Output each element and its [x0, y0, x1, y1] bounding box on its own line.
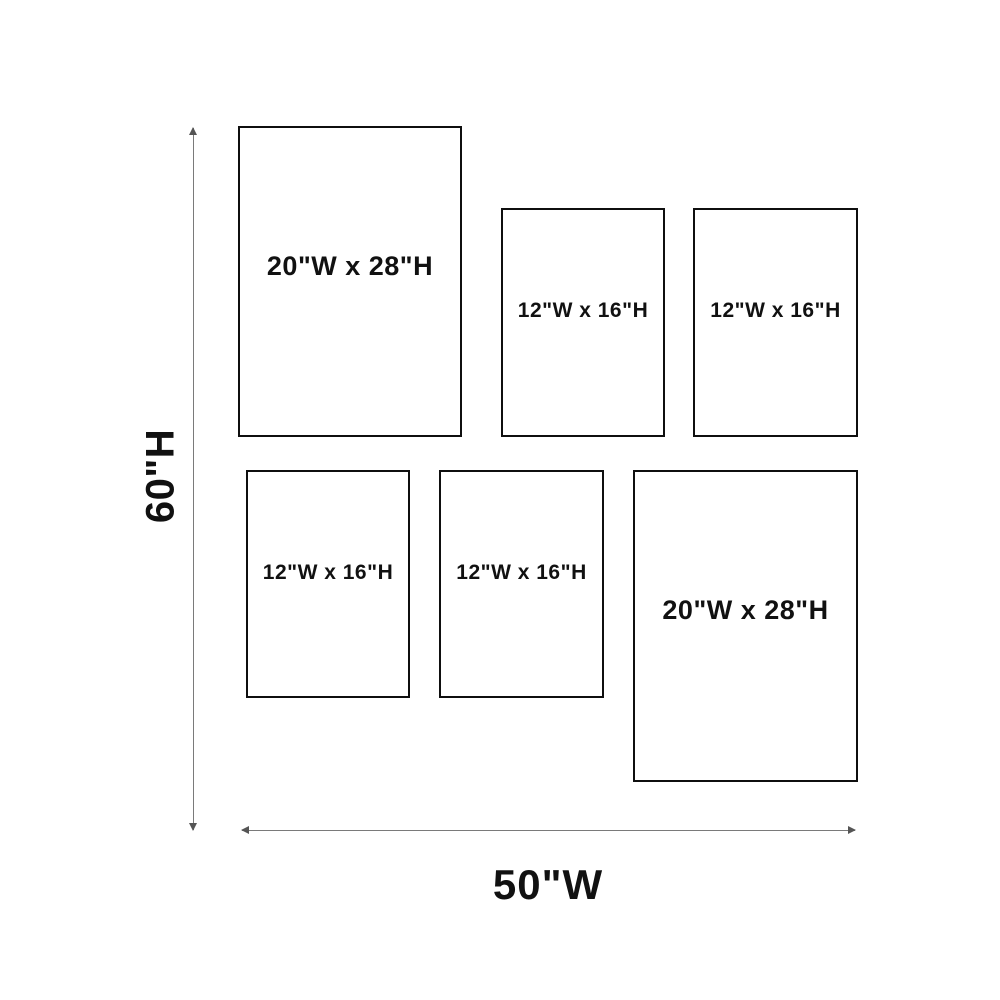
frame-12x16-top-middle: 12"W x 16"H: [501, 208, 665, 437]
frame-12x16-top-right: 12"W x 16"H: [693, 208, 858, 437]
height-dimension-label: 60"H: [139, 429, 184, 523]
width-dimension-label: 50"W: [493, 861, 603, 909]
width-dimension-line: [242, 830, 855, 831]
frame-size-label: 20"W x 28"H: [662, 595, 828, 626]
frame-size-label: 12"W x 16"H: [518, 299, 648, 323]
height-dimension-line: [193, 128, 194, 830]
arrow-right-icon: [848, 826, 856, 834]
frame-size-label: 12"W x 16"H: [710, 299, 840, 323]
frame-20x28-bottom-right: 20"W x 28"H: [633, 470, 858, 782]
frame-size-label: 12"W x 16"H: [456, 561, 586, 585]
frame-12x16-bottom-middle: 12"W x 16"H: [439, 470, 604, 698]
frame-size-label: 20"W x 28"H: [267, 251, 433, 282]
frame-20x28-top-left: 20"W x 28"H: [238, 126, 462, 437]
arrow-left-icon: [241, 826, 249, 834]
arrow-down-icon: [189, 823, 197, 831]
gallery-wall-diagram: 60"H 50"W 20"W x 28"H 12"W x 16"H 12"W x…: [0, 0, 1000, 1000]
frame-12x16-bottom-left: 12"W x 16"H: [246, 470, 410, 698]
arrow-up-icon: [189, 127, 197, 135]
frame-size-label: 12"W x 16"H: [263, 561, 393, 585]
